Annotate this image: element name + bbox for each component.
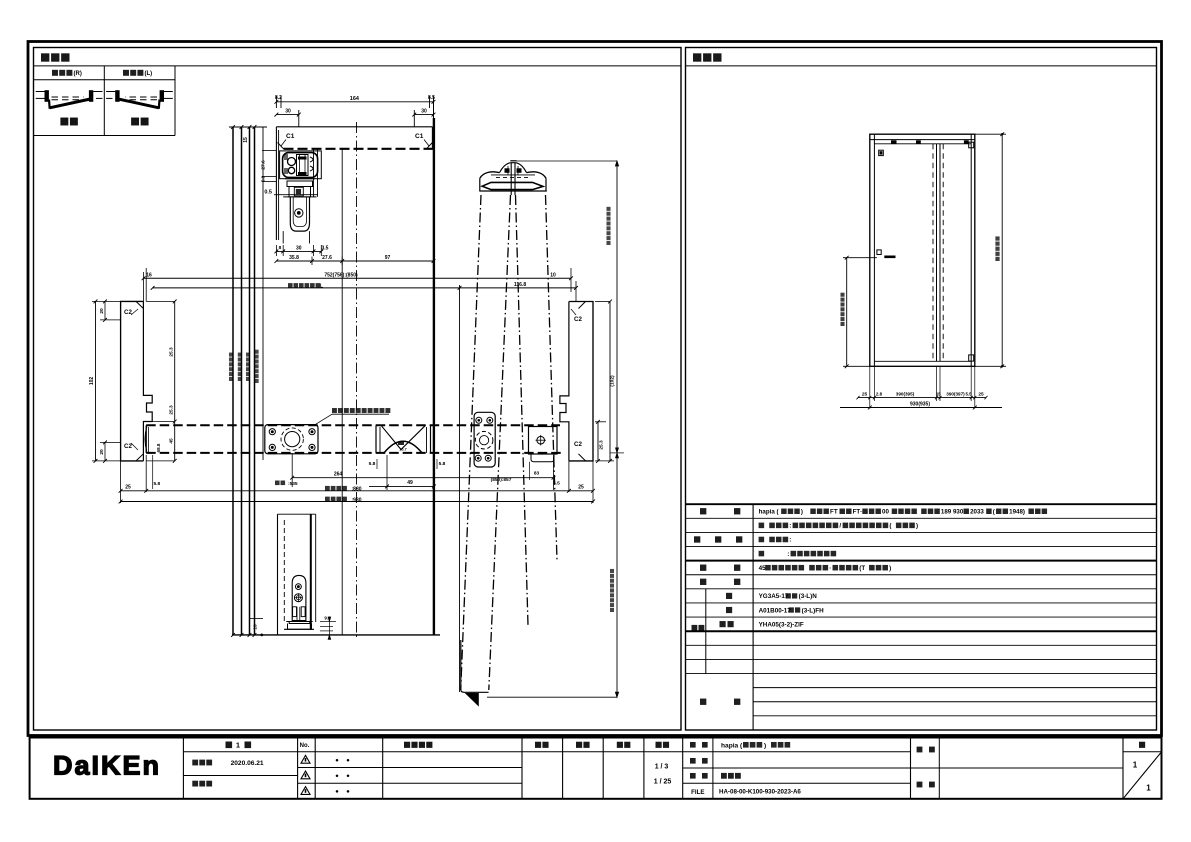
svg-text:No.: No. bbox=[300, 743, 310, 749]
svg-text:A01B00-17: A01B00-17 bbox=[759, 607, 792, 614]
svg-text:(850):857: (850):857 bbox=[491, 477, 512, 483]
svg-text:(L): (L) bbox=[145, 71, 153, 77]
svg-text::930: :930 bbox=[352, 497, 362, 503]
svg-text:0.5: 0.5 bbox=[264, 190, 272, 196]
svg-text:C1: C1 bbox=[286, 133, 295, 140]
svg-text:35.8: 35.8 bbox=[289, 255, 299, 261]
svg-text:25: 25 bbox=[578, 485, 584, 491]
svg-text:L: L bbox=[320, 283, 323, 289]
svg-text:5.8: 5.8 bbox=[369, 461, 376, 467]
svg-text:390(395): 390(395) bbox=[896, 391, 915, 396]
svg-text:(3-L)N: (3-L)N bbox=[799, 593, 818, 600]
svg-text:5.8: 5.8 bbox=[261, 175, 266, 182]
svg-text:8.2: 8.2 bbox=[275, 95, 282, 101]
svg-text:YG3A5-17: YG3A5-17 bbox=[759, 593, 789, 600]
svg-text:(3-L)FH: (3-L)FH bbox=[802, 607, 824, 614]
svg-text:FILE: FILE bbox=[691, 789, 704, 796]
svg-text::880: :880 bbox=[352, 487, 362, 493]
svg-text:930(935): 930(935) bbox=[910, 401, 930, 407]
svg-text:C2: C2 bbox=[124, 443, 132, 450]
svg-text:C2: C2 bbox=[574, 316, 582, 323]
svg-text:1 / 25: 1 / 25 bbox=[654, 778, 672, 785]
svg-text:189 930: 189 930 bbox=[941, 508, 964, 515]
svg-text::535: :535 bbox=[288, 481, 298, 487]
svg-text:45: 45 bbox=[759, 565, 767, 572]
svg-text:1 / 3: 1 / 3 bbox=[655, 764, 669, 771]
svg-text:(R): (R) bbox=[74, 71, 82, 77]
svg-text:10: 10 bbox=[550, 272, 556, 278]
svg-text:30: 30 bbox=[421, 108, 427, 114]
svg-text:FT·: FT· bbox=[853, 508, 863, 515]
svg-text:C1: C1 bbox=[415, 133, 424, 140]
svg-text:97: 97 bbox=[385, 255, 391, 261]
svg-text:164: 164 bbox=[350, 96, 360, 102]
svg-text:5.5: 5.5 bbox=[965, 391, 972, 396]
svg-text:(T: (T bbox=[859, 565, 865, 572]
svg-text:752(756):(850): 752(756):(850) bbox=[324, 272, 358, 278]
svg-text::: : bbox=[787, 551, 789, 558]
svg-text:45: 45 bbox=[169, 438, 175, 444]
svg-text:(102): (102) bbox=[610, 375, 616, 387]
svg-text:hapia (: hapia ( bbox=[721, 742, 743, 749]
svg-text:hapia (: hapia ( bbox=[759, 508, 780, 515]
svg-text:HA-08-00-K100-930-2023-A6: HA-08-00-K100-930-2023-A6 bbox=[719, 789, 801, 796]
svg-text:00: 00 bbox=[882, 508, 889, 515]
svg-text::: : bbox=[789, 523, 791, 530]
svg-text:1: 1 bbox=[236, 741, 240, 750]
svg-text:25: 25 bbox=[125, 485, 131, 491]
svg-text:15.7: 15.7 bbox=[399, 448, 406, 452]
svg-text:116.8: 116.8 bbox=[514, 282, 526, 288]
svg-text:(: ( bbox=[993, 508, 996, 515]
svg-text:): ) bbox=[801, 508, 803, 515]
svg-text:15: 15 bbox=[936, 391, 941, 396]
svg-text:2.8: 2.8 bbox=[876, 391, 883, 396]
svg-text:25: 25 bbox=[862, 391, 868, 397]
svg-text:FT: FT bbox=[830, 508, 838, 515]
svg-text:13: 13 bbox=[253, 624, 259, 630]
svg-text:390(397): 390(397) bbox=[946, 391, 965, 396]
svg-text:1: 1 bbox=[1146, 784, 1151, 793]
svg-text:1948): 1948) bbox=[1009, 508, 1025, 515]
svg-text:5.8: 5.8 bbox=[439, 461, 446, 467]
svg-text:25.3: 25.3 bbox=[599, 440, 605, 450]
svg-text:68.8: 68.8 bbox=[156, 443, 161, 452]
svg-text:83: 83 bbox=[534, 471, 540, 477]
svg-text:DaIKEn: DaIKEn bbox=[53, 751, 161, 781]
svg-text:30: 30 bbox=[285, 108, 291, 114]
svg-text:/: / bbox=[839, 523, 841, 530]
svg-text:8.5: 8.5 bbox=[428, 95, 435, 101]
svg-text:27.6: 27.6 bbox=[322, 255, 332, 261]
svg-text:49: 49 bbox=[407, 480, 413, 486]
svg-text:2033: 2033 bbox=[970, 508, 984, 515]
svg-text:1: 1 bbox=[1133, 761, 1138, 770]
svg-text:30: 30 bbox=[296, 245, 302, 251]
svg-text:16: 16 bbox=[146, 272, 152, 278]
svg-text:15: 15 bbox=[243, 137, 249, 143]
svg-text:(: ( bbox=[889, 523, 892, 530]
svg-text:25.3: 25.3 bbox=[169, 405, 175, 415]
svg-text:264: 264 bbox=[334, 471, 343, 477]
svg-text:·: · bbox=[829, 565, 831, 572]
svg-text::: : bbox=[789, 537, 791, 544]
svg-text:): ) bbox=[916, 523, 918, 530]
svg-text:5.8: 5.8 bbox=[154, 481, 161, 487]
svg-text:8: 8 bbox=[279, 245, 282, 251]
svg-text:): ) bbox=[764, 742, 766, 749]
svg-text:25.3: 25.3 bbox=[169, 347, 175, 357]
svg-text:C2: C2 bbox=[574, 441, 582, 448]
svg-text:20: 20 bbox=[99, 449, 105, 455]
svg-text:27.6: 27.6 bbox=[261, 160, 267, 170]
svg-text:): ) bbox=[889, 565, 891, 572]
svg-text:25: 25 bbox=[978, 391, 984, 397]
svg-text:YHA05(3-2)-ZIF: YHA05(3-2)-ZIF bbox=[759, 621, 804, 628]
svg-text:102: 102 bbox=[89, 377, 95, 386]
svg-text:20: 20 bbox=[99, 308, 105, 314]
svg-text:2020.06.21: 2020.06.21 bbox=[231, 760, 264, 767]
